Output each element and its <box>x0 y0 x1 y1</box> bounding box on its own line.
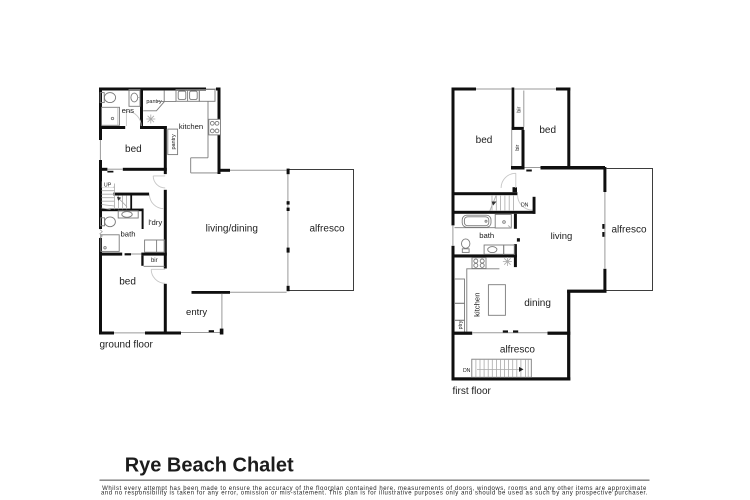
svg-text:alfresco: alfresco <box>611 225 646 236</box>
svg-text:bir: bir <box>515 144 521 150</box>
svg-text:kitchen: kitchen <box>472 293 481 317</box>
svg-text:bir: bir <box>151 258 158 264</box>
svg-text:ens: ens <box>122 106 135 115</box>
svg-text:ptry: ptry <box>458 320 464 329</box>
svg-text:bed: bed <box>119 277 136 288</box>
svg-text:DN: DN <box>521 202 529 208</box>
svg-text:alfresco: alfresco <box>309 223 344 234</box>
svg-text:l'dry: l'dry <box>148 218 162 227</box>
svg-text:bath: bath <box>121 229 136 238</box>
svg-text:UP: UP <box>104 182 112 188</box>
svg-text:living: living <box>551 231 573 242</box>
svg-text:ground floor: ground floor <box>100 339 154 350</box>
svg-text:pantry: pantry <box>171 134 177 150</box>
svg-text:bath: bath <box>479 231 494 240</box>
svg-text:alfresco: alfresco <box>500 344 535 355</box>
svg-text:Rye Beach Chalet: Rye Beach Chalet <box>125 454 294 476</box>
svg-text:bed: bed <box>125 144 142 155</box>
svg-text:living/dining: living/dining <box>206 224 258 235</box>
svg-text:bed: bed <box>476 135 493 146</box>
svg-text:kitchen: kitchen <box>179 122 203 131</box>
svg-text:and no responsibility is taken: and no responsibility is taken for any e… <box>101 491 648 497</box>
svg-text:bed: bed <box>539 125 556 136</box>
svg-text:DN: DN <box>463 368 471 374</box>
svg-text:entry: entry <box>186 307 207 318</box>
svg-text:bir: bir <box>517 106 523 112</box>
svg-text:dining: dining <box>524 298 551 309</box>
svg-text:first floor: first floor <box>453 386 492 397</box>
